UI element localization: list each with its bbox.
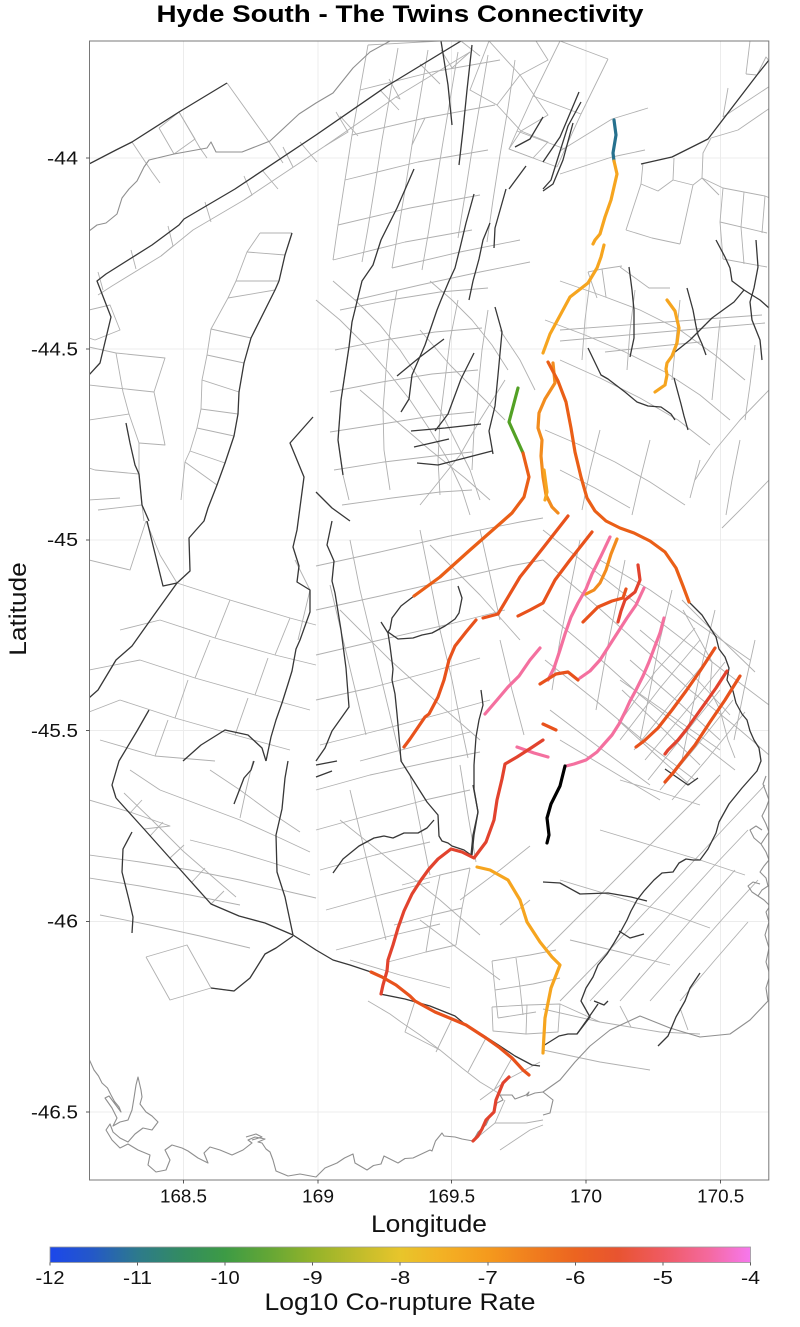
svg-text:-9: -9 bbox=[303, 1268, 323, 1288]
svg-text:-4: -4 bbox=[741, 1268, 760, 1288]
svg-text:169.5: 169.5 bbox=[428, 1187, 475, 1207]
svg-text:-45: -45 bbox=[47, 530, 78, 550]
svg-text:-6: -6 bbox=[565, 1268, 585, 1288]
svg-text:169: 169 bbox=[302, 1187, 334, 1207]
svg-text:168.5: 168.5 bbox=[160, 1187, 207, 1207]
svg-text:-46.5: -46.5 bbox=[31, 1103, 78, 1123]
svg-text:-7: -7 bbox=[478, 1268, 498, 1288]
svg-text:Hyde South - The Twins Connect: Hyde South - The Twins Connectivity bbox=[157, 1, 645, 28]
svg-text:-5: -5 bbox=[653, 1268, 673, 1288]
svg-text:Log10 Co-rupture Rate: Log10 Co-rupture Rate bbox=[265, 1289, 536, 1316]
svg-text:-10: -10 bbox=[211, 1268, 240, 1288]
svg-text:-12: -12 bbox=[36, 1268, 65, 1288]
svg-text:-11: -11 bbox=[123, 1268, 152, 1288]
svg-text:Longitude: Longitude bbox=[371, 1211, 487, 1238]
svg-text:-8: -8 bbox=[390, 1268, 410, 1288]
svg-text:-44: -44 bbox=[47, 149, 78, 169]
svg-text:170.5: 170.5 bbox=[697, 1187, 744, 1207]
svg-text:-45.5: -45.5 bbox=[31, 721, 78, 741]
svg-text:Latitude: Latitude bbox=[5, 562, 32, 656]
svg-text:170: 170 bbox=[570, 1187, 602, 1207]
svg-text:-46: -46 bbox=[47, 912, 78, 932]
svg-text:-44.5: -44.5 bbox=[31, 339, 78, 359]
